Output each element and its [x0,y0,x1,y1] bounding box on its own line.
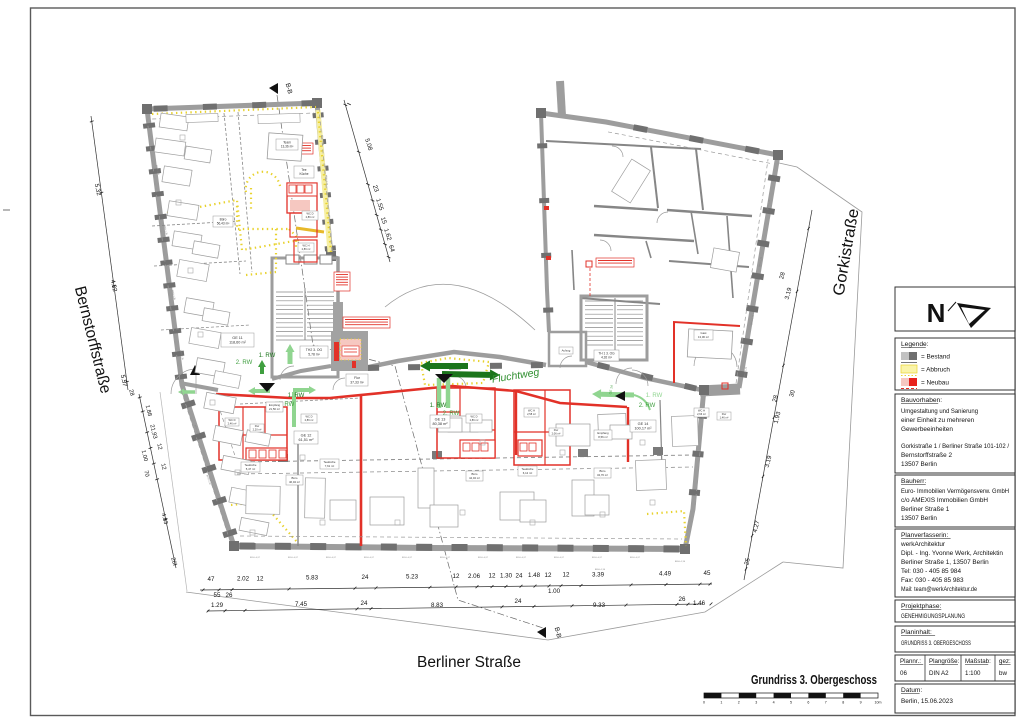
svg-text:118,60 m²: 118,60 m² [229,341,247,345]
svg-text:Euro- Immobilien Vermögensverw: Euro- Immobilien Vermögensverw. GmbH [901,488,1009,495]
svg-text:Plangröße:: Plangröße: [929,658,960,665]
svg-text:10m: 10m [875,701,882,705]
svg-text:4.49: 4.49 [659,571,672,578]
svg-text:12: 12 [257,575,264,582]
svg-text:2: 2 [738,701,740,705]
svg-text:13,36 m²: 13,36 m² [281,145,294,149]
svg-text:WC D: WC D [307,212,314,216]
svg-text:Plannr.:: Plannr.: [900,658,921,665]
svg-text:0: 0 [703,701,705,705]
svg-text:gez:: gez: [999,658,1011,665]
svg-text:55: 55 [214,592,221,599]
svg-text:2.02: 2.02 [237,575,250,582]
svg-text:24: 24 [362,574,369,581]
svg-text:5,47 m²: 5,47 m² [246,467,256,471]
svg-text:5: 5 [790,701,792,705]
svg-text:1.30: 1.30 [500,572,513,579]
svg-text:5,78 m²: 5,78 m² [308,352,320,356]
svg-text:21,56 m²: 21,56 m² [269,407,280,411]
svg-text:24: 24 [516,572,523,579]
svg-text:1:100: 1:100 [965,670,981,677]
svg-text:3.39: 3.39 [592,571,605,578]
svg-text:34,76 m²: 34,76 m² [597,473,608,477]
svg-text:12: 12 [453,573,460,580]
svg-text:= Neubau: = Neubau [921,380,949,387]
svg-text:1.00: 1.00 [548,588,561,595]
svg-text:Gewerbeeinheiten: Gewerbeeinheiten [901,426,953,433]
svg-text:26: 26 [679,596,686,603]
svg-text:5.83: 5.83 [306,575,319,582]
svg-text:WC H: WC H [303,244,310,248]
svg-text:Planverfasserin:: Planverfasserin: [901,532,948,539]
svg-text:2,20 m²: 2,20 m² [253,428,262,432]
svg-text:Berliner Straße: Berliner Straße [417,654,521,671]
svg-text:1. RW: 1. RW [646,393,663,399]
svg-text:Bauvorhaben:: Bauvorhaben: [901,397,942,404]
svg-text:13,06 m²: 13,06 m² [698,335,709,339]
svg-text:12: 12 [489,573,496,580]
svg-text:= Bestand: = Bestand [921,354,950,361]
svg-text:2,58 m²: 2,58 m² [527,412,536,416]
svg-text:Flur: Flur [554,428,559,432]
svg-text:einer Einheit zu mehreren: einer Einheit zu mehreren [901,417,975,424]
svg-text:GENEHMIGUNGSPLANUNG: GENEHMIGUNGSPLANUNG [901,613,965,620]
svg-text:Tel: 030 - 405 85 984: Tel: 030 - 405 85 984 [901,568,961,575]
svg-text:= Abbruch: = Abbruch [921,367,950,374]
svg-text:BRH+0,87: BRH+0,87 [288,557,299,559]
svg-text:5.23: 5.23 [406,574,419,581]
svg-text:8: 8 [842,701,844,705]
svg-text:2,66 m²: 2,66 m² [697,412,706,416]
svg-text:werkArchitektur: werkArchitektur [900,541,946,548]
svg-text:80,38 m²: 80,38 m² [433,422,449,426]
svg-text:c/o AMEXIS Immobilien GmbH: c/o AMEXIS Immobilien GmbH [901,497,988,504]
svg-text:BRH+1,36: BRH+1,36 [675,561,686,563]
svg-text:7: 7 [825,701,827,705]
svg-text:Fax: 030 - 405 85 983: Fax: 030 - 405 85 983 [901,577,964,584]
svg-text:100,17 m²: 100,17 m² [634,427,652,431]
svg-text:BRH+0,87: BRH+0,87 [250,557,261,559]
svg-text:GE 14: GE 14 [638,422,649,426]
svg-text:1.46: 1.46 [693,600,706,607]
svg-text:BRH+0,87: BRH+0,87 [630,557,641,559]
svg-text:Datum:: Datum: [901,687,922,694]
svg-text:Umgestaltung und Sanierung: Umgestaltung und Sanierung [901,408,978,415]
svg-text:2. RW: 2. RW [236,360,253,366]
svg-text:WC D: WC D [229,418,236,422]
svg-text:N: N [927,298,946,328]
svg-text:24: 24 [361,600,368,607]
svg-text:7,61 m²: 7,61 m² [325,464,335,468]
svg-text:Dipl. - Ing. Yvonne Werk, Arch: Dipl. - Ing. Yvonne Werk, Architektin [901,550,1003,557]
svg-text:6,12 m²: 6,12 m² [523,471,533,475]
svg-text:WC H: WC H [698,409,705,413]
svg-text:2,86 m²: 2,86 m² [470,418,479,422]
svg-text:WC D: WC D [471,415,478,419]
svg-text:2,86 m²: 2,86 m² [306,215,315,219]
svg-text:bw: bw [999,670,1007,677]
svg-text:4: 4 [773,701,775,705]
svg-text:BRH+0,87: BRH+0,87 [478,557,489,559]
svg-text:Maßstab:: Maßstab: [965,658,991,665]
svg-text:BRH+0,87: BRH+0,87 [516,557,527,559]
svg-text:24: 24 [515,598,522,605]
svg-text:13507 Berlin: 13507 Berlin [901,515,937,522]
svg-text:1: 1 [720,701,722,705]
svg-text:2,06 m²: 2,06 m² [552,432,561,436]
svg-text:8.83: 8.83 [431,602,444,609]
svg-text:7.45: 7.45 [295,601,308,608]
svg-text:13507 Berlin: 13507 Berlin [901,461,937,468]
svg-text:Berliner Straße 1, 13507 Berli: Berliner Straße 1, 13507 Berlin [901,559,989,566]
svg-text:BRH+0,87: BRH+0,87 [592,557,603,559]
svg-text:WC H: WC H [528,409,535,413]
svg-text:2.06: 2.06 [468,573,481,580]
svg-text:46,04 m²: 46,04 m² [289,480,300,484]
svg-text:Küche: Küche [299,172,308,176]
svg-text:Flur: Flur [255,424,260,428]
svg-text:1.29: 1.29 [211,602,224,609]
svg-text:1,46 m²: 1,46 m² [720,416,729,420]
svg-text:Legende:: Legende: [901,341,929,348]
svg-text:BRH+0,87: BRH+0,87 [364,557,375,559]
svg-text:1. RW: 1. RW [288,393,305,399]
svg-text:Flur: Flur [722,412,727,416]
svg-text:9.33: 9.33 [593,602,606,609]
svg-text:GE 11: GE 11 [232,336,242,340]
svg-text:2,86 m²: 2,86 m² [302,247,311,251]
svg-text:37,33 m²: 37,33 m² [350,380,364,384]
svg-text:DIN A2: DIN A2 [929,670,949,677]
svg-text:12: 12 [563,572,570,579]
svg-text:BRH+1,36: BRH+1,36 [595,569,606,571]
svg-text:3: 3 [755,701,757,705]
svg-text:26: 26 [226,592,233,599]
svg-text:GE 13: GE 13 [435,417,446,421]
svg-text:44,04 m²: 44,04 m² [469,476,480,480]
svg-text:2. RW: 2. RW [639,403,656,409]
svg-text:BRH+0,87: BRH+0,87 [554,557,565,559]
svg-text:1. RW: 1. RW [259,353,276,359]
svg-text:Bauherr:: Bauherr: [901,478,926,485]
svg-text:45: 45 [704,570,711,577]
svg-text:4,92 m²: 4,92 m² [601,356,612,360]
svg-text:Flur: Flur [354,376,361,380]
svg-text:Aufzug: Aufzug [562,348,571,352]
svg-text:Berliner Straße 1: Berliner Straße 1 [901,506,950,513]
svg-text:61,51 m²: 61,51 m² [299,438,315,442]
svg-text:Berlin, 15.06.2023: Berlin, 15.06.2023 [901,698,953,705]
svg-text:9: 9 [860,701,862,705]
svg-text:56,43 m²: 56,43 m² [217,222,230,226]
svg-text:TH2 3. OG: TH2 3. OG [306,348,323,352]
svg-text:2,86 m²: 2,86 m² [305,418,314,422]
svg-text:Projektphase:: Projektphase: [901,603,941,610]
svg-text:47: 47 [208,576,215,583]
svg-text:Gorkistraße 1 / Berliner Straß: Gorkistraße 1 / Berliner Straße 101-102 … [901,443,1009,450]
svg-text:Bernstorffstraße 2: Bernstorffstraße 2 [901,452,952,459]
svg-text:6: 6 [807,701,809,705]
svg-text:BRH+0,87: BRH+0,87 [326,557,337,559]
svg-text:12: 12 [545,572,552,579]
svg-text:06: 06 [900,670,907,677]
svg-text:WC D: WC D [306,415,313,419]
svg-text:Grundriss 3. Obergeschoss: Grundriss 3. Obergeschoss [751,673,877,687]
svg-text:Planinhalt:: Planinhalt: [901,629,932,636]
svg-text:8,56 m²: 8,56 m² [598,435,608,439]
svg-text:GRUNDRISS 3. OBERGESCHOSS: GRUNDRISS 3. OBERGESCHOSS [901,640,971,647]
svg-text:1. RW: 1. RW [430,403,447,409]
svg-text:Mail: team@werkArchitektur.de: Mail: team@werkArchitektur.de [901,586,977,593]
svg-text:BRH+0,87: BRH+0,87 [440,557,451,559]
svg-text:BRH+0,87: BRH+0,87 [402,557,413,559]
svg-text:2,46 m²: 2,46 m² [228,422,237,426]
svg-text:GE 12: GE 12 [301,433,312,437]
svg-text:1.48: 1.48 [528,572,541,579]
